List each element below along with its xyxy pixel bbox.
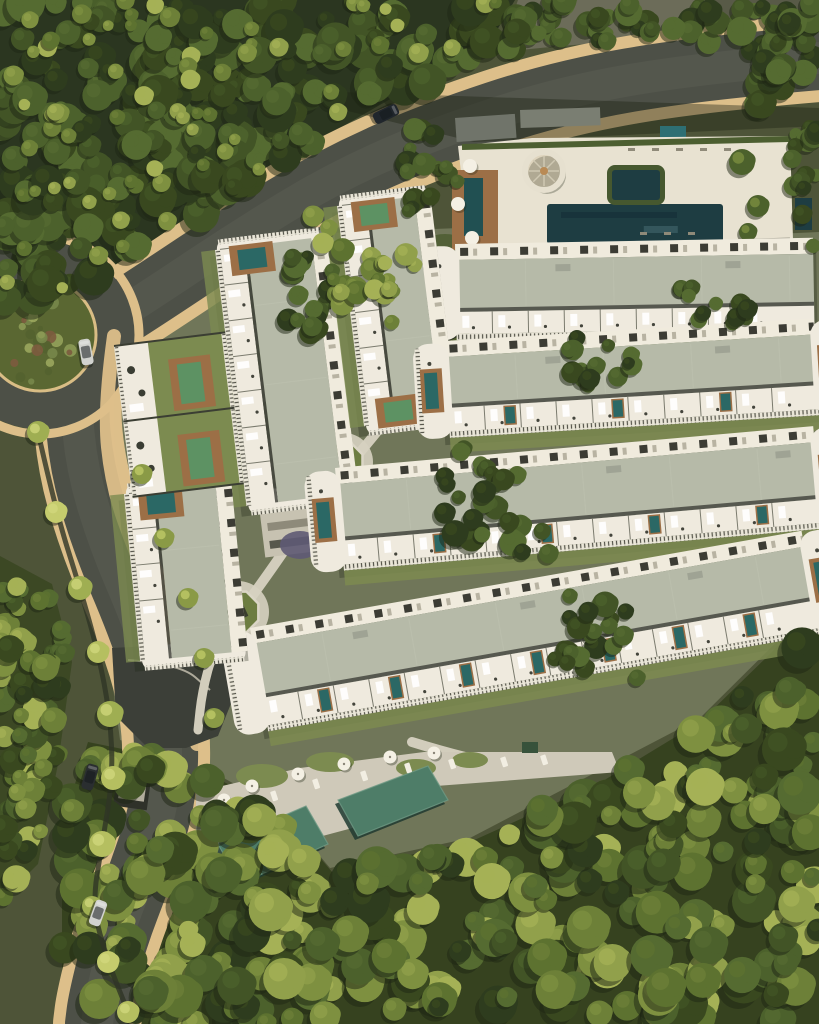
terrace-pool [648,515,661,534]
site-render-canvas [0,0,819,1024]
rooftop-amenity-deck [451,136,812,252]
umbrella [451,197,465,211]
end-terrace-pool [424,373,439,410]
umbrella [465,231,479,245]
deck-lap-pool [464,178,483,236]
rooftop-pool [237,247,267,270]
plunge-pool [177,362,206,405]
rooftop-pool [359,203,389,226]
rooftop-pool [383,399,413,422]
terrace-pool [720,393,732,412]
pool-kiosk [522,742,538,753]
round-pergola [525,152,566,194]
terrace-pool [756,505,769,524]
terrace-pool [612,399,624,418]
roof-structure [455,114,517,142]
terrace-pool [504,406,516,425]
aerial-site-plan [0,0,819,1024]
tower-g [109,474,248,673]
deck-plunge-pool [612,170,660,200]
roof-structure [520,107,601,128]
plunge-pool [186,437,215,480]
deck-main-pool [547,204,723,244]
umbrella [463,159,477,173]
lawn-patch [236,764,288,788]
lawn-patch [452,752,488,768]
